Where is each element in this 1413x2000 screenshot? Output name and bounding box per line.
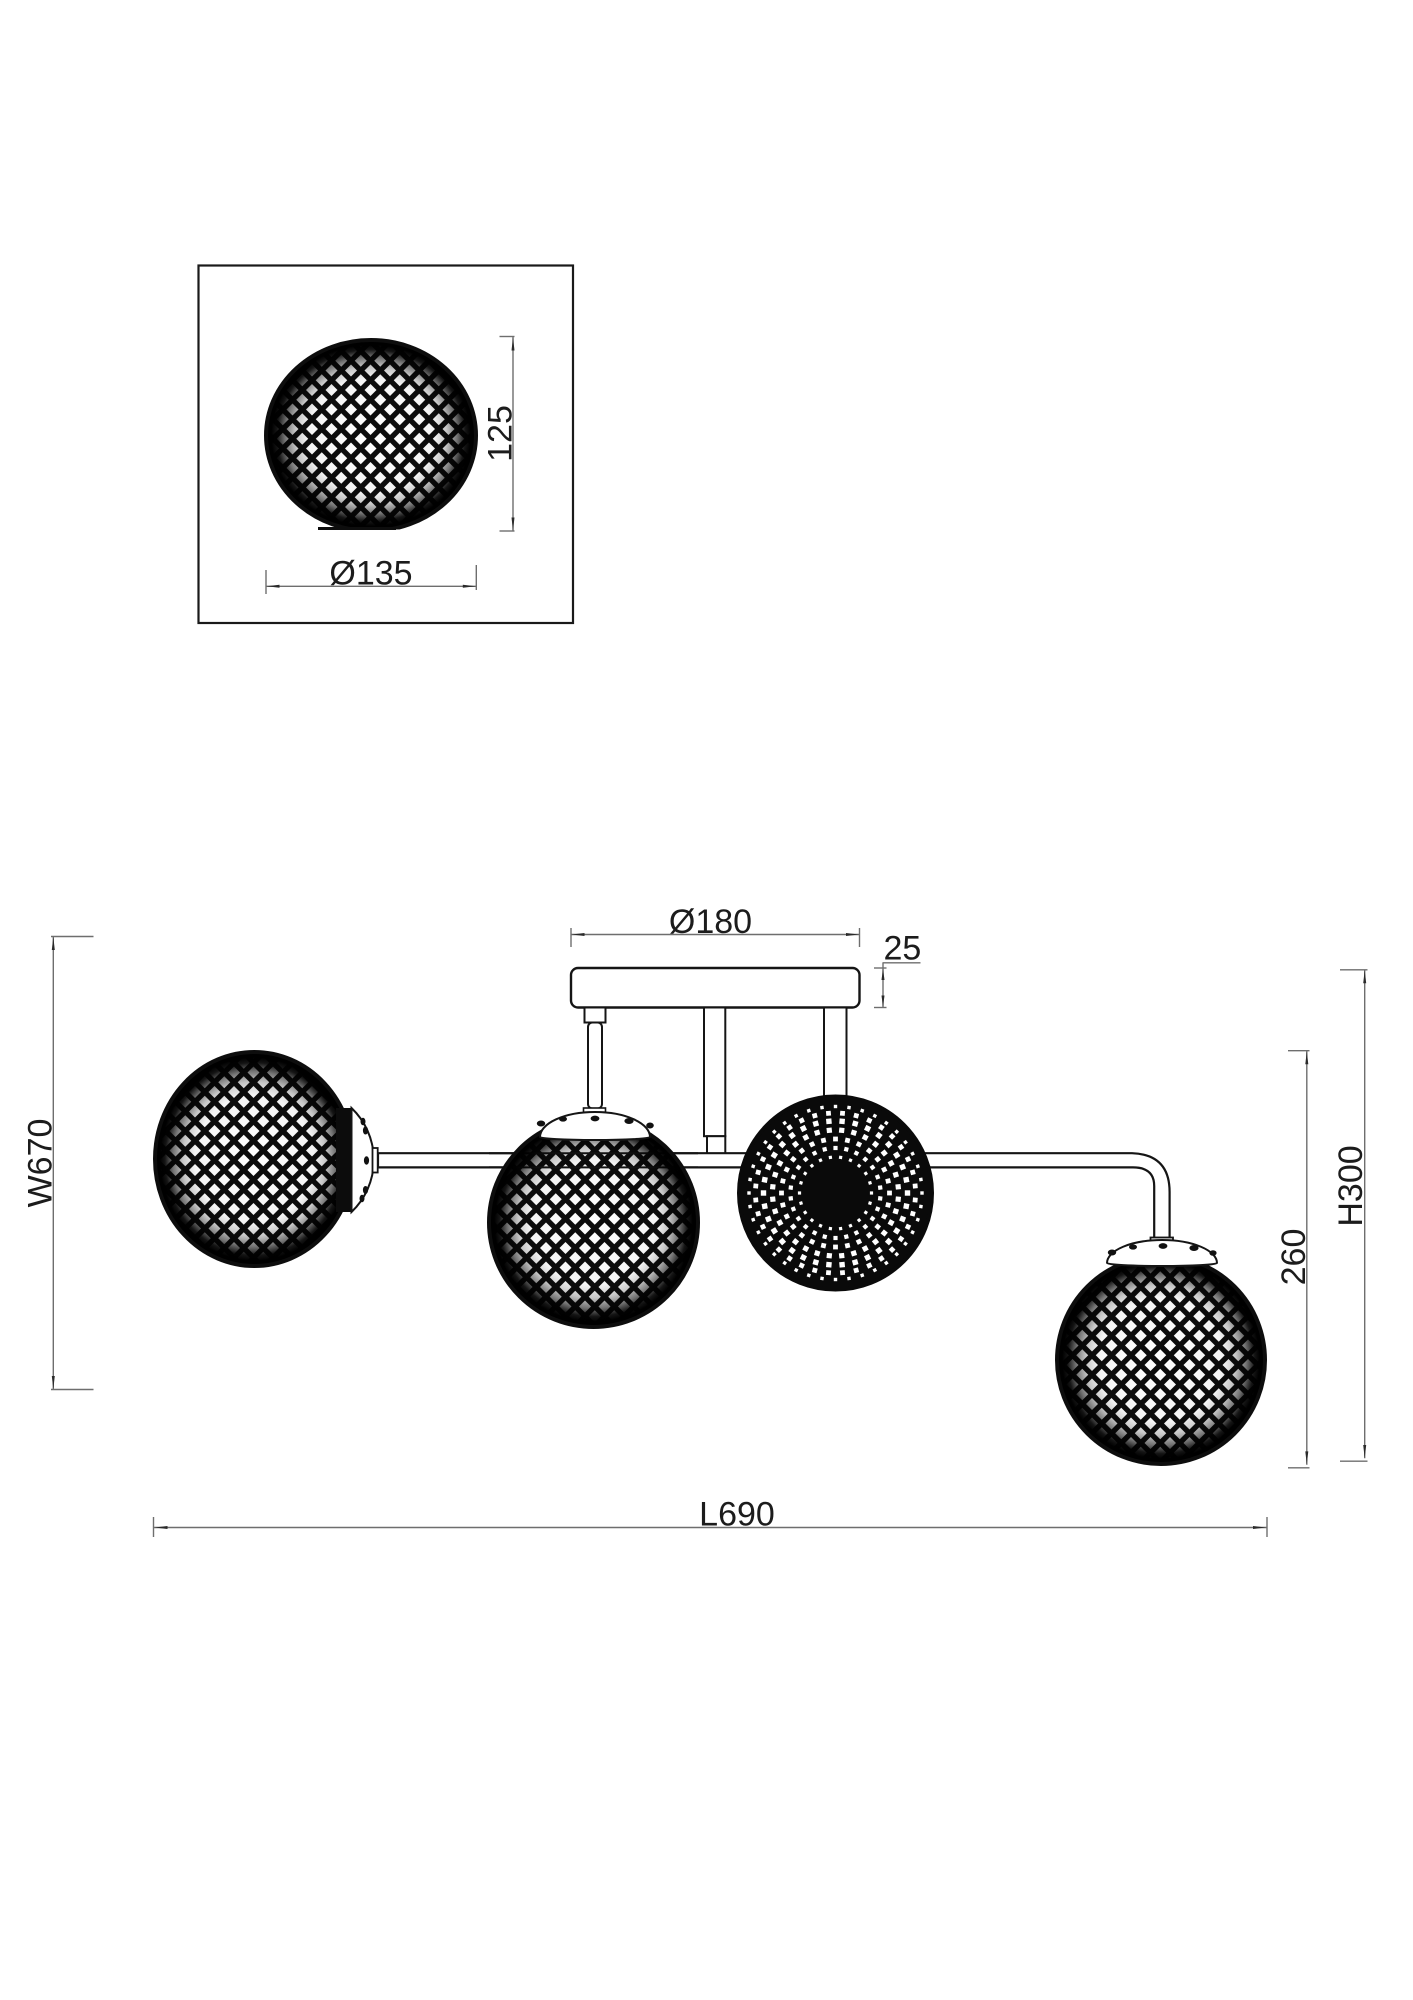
svg-text:L690: L690 (699, 1496, 775, 1534)
svg-text:H300: H300 (1332, 1145, 1370, 1226)
svg-text:Ø180: Ø180 (669, 903, 752, 941)
svg-text:W670: W670 (22, 1119, 60, 1208)
svg-text:125: 125 (482, 405, 520, 462)
svg-text:25: 25 (884, 930, 922, 968)
svg-text:260: 260 (1275, 1229, 1313, 1286)
svg-text:Ø135: Ø135 (329, 555, 412, 593)
